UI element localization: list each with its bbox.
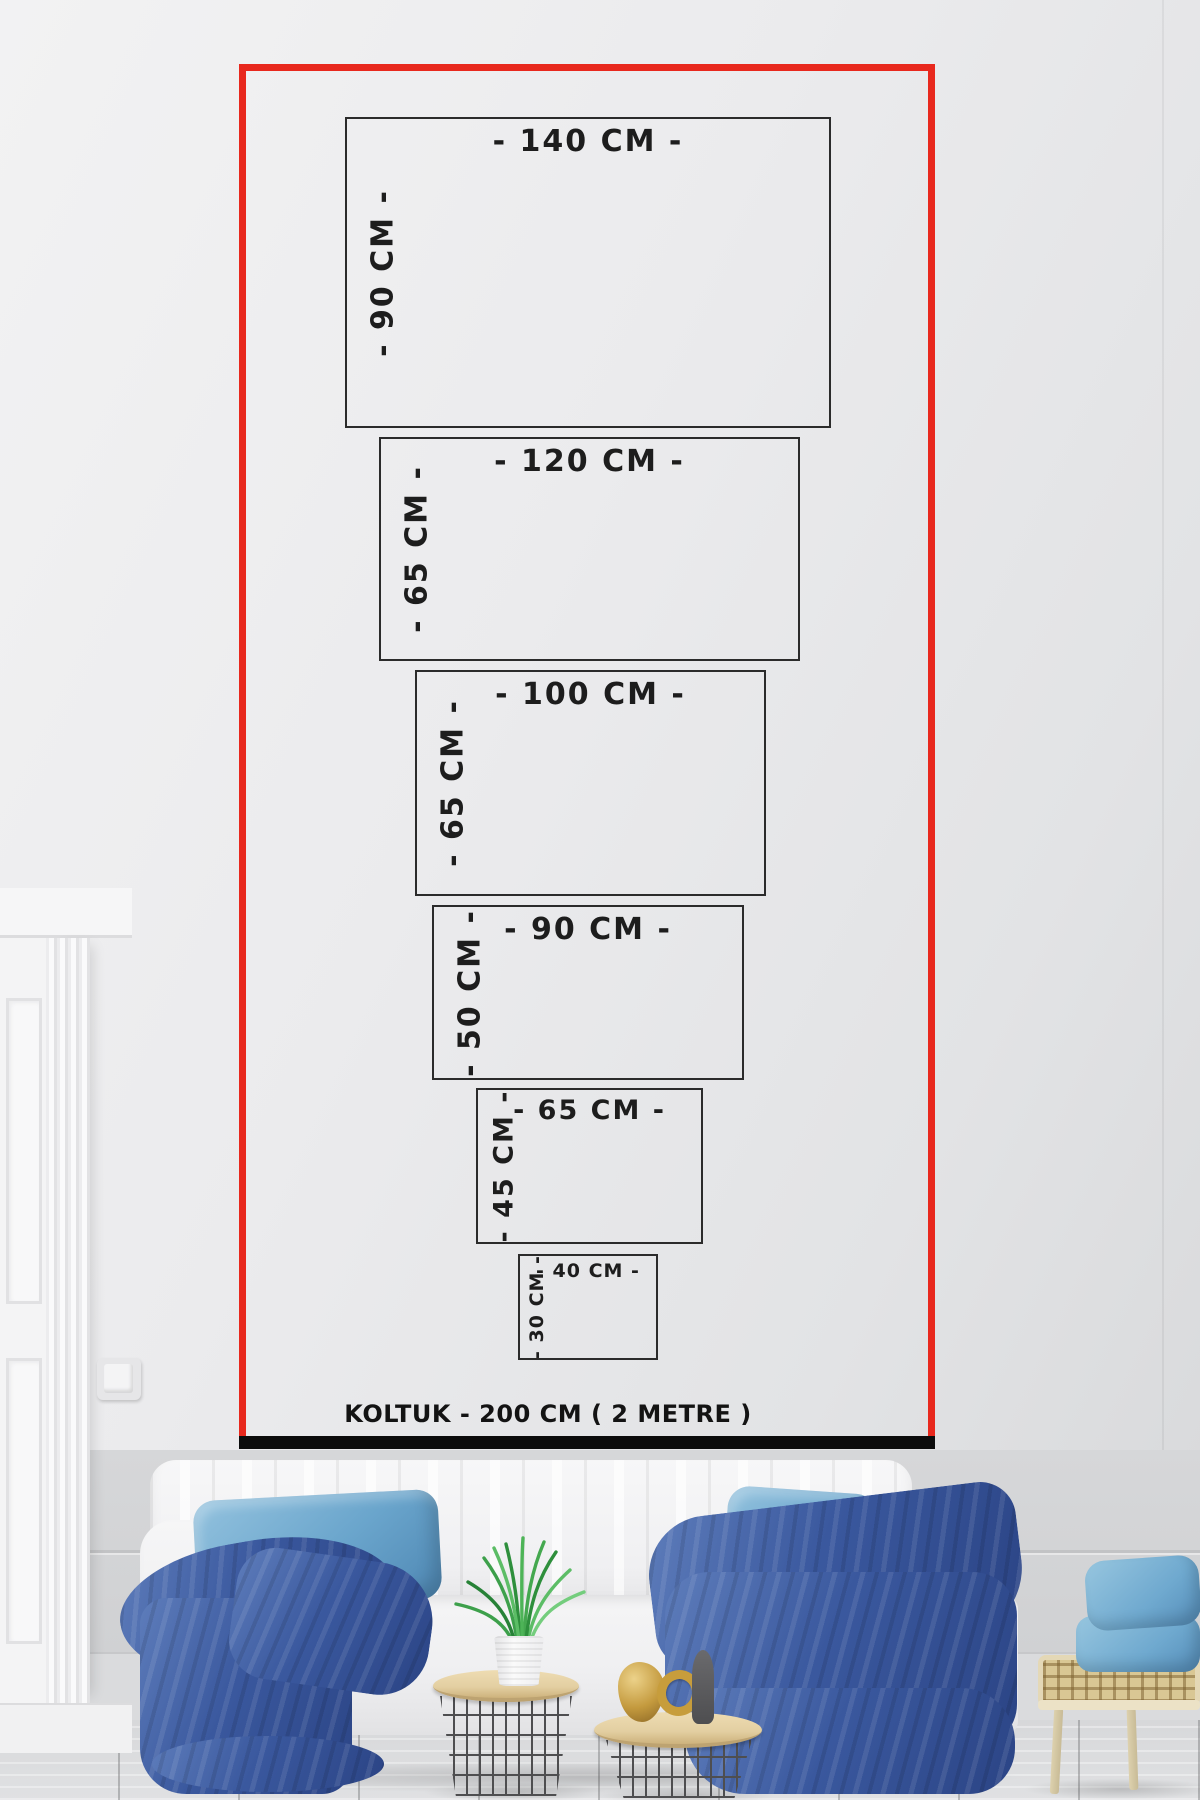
height-label-90: - 90 CM -	[366, 189, 401, 357]
fluted-pilaster	[46, 938, 90, 1703]
wire-basket-table-left	[440, 1696, 572, 1796]
door-frame-cap	[0, 888, 132, 938]
dark-figurine	[692, 1650, 714, 1724]
size-box-120x65: - 120 CM - - 65 CM -	[379, 437, 800, 661]
size-box-140x90: - 140 CM - - 90 CM -	[345, 117, 831, 428]
width-label-140: - 140 CM -	[347, 124, 829, 159]
white-plant-pot	[492, 1636, 546, 1686]
door-panel-upper	[6, 998, 42, 1304]
size-box-65x45: - 65 CM - - 45 CM -	[476, 1088, 703, 1244]
door-panel-lower	[6, 1358, 42, 1644]
size-guide-page: - 140 CM - - 90 CM - - 120 CM - - 65 CM …	[0, 0, 1200, 1800]
bench-frame-apron	[1038, 1700, 1200, 1710]
light-switch-rocker	[104, 1364, 133, 1393]
height-label-30: - 30 CM -	[526, 1255, 548, 1359]
height-label-50: - 50 CM -	[453, 909, 488, 1077]
bench-pillow-top	[1084, 1554, 1200, 1632]
size-box-90x50: - 90 CM - - 50 CM -	[432, 905, 744, 1080]
sofa-width-caption: KOLTUK - 200 CM ( 2 METRE )	[268, 1400, 828, 1428]
sofa-width-bar	[239, 1436, 935, 1449]
light-switch	[97, 1358, 141, 1400]
width-label-120: - 120 CM -	[381, 444, 798, 479]
height-label-65: - 65 CM -	[400, 465, 435, 633]
door-base-block	[0, 1703, 132, 1753]
size-box-100x65: - 100 CM - - 65 CM -	[415, 670, 766, 896]
door-panels	[0, 938, 46, 1703]
bench-shadow	[1020, 1778, 1200, 1800]
wire-basket-table-right	[606, 1740, 752, 1798]
size-box-40x30: - 40 CM - - 30 CM -	[518, 1254, 658, 1360]
height-label-45: - 45 CM -	[489, 1090, 520, 1243]
wall-corner-line	[1162, 0, 1164, 1450]
height-label-65b: - 65 CM -	[436, 699, 471, 867]
grass-plant-icon	[448, 1534, 593, 1642]
navy-throw-left-floor-tail	[152, 1736, 384, 1792]
right-table-wood-top	[594, 1712, 762, 1748]
